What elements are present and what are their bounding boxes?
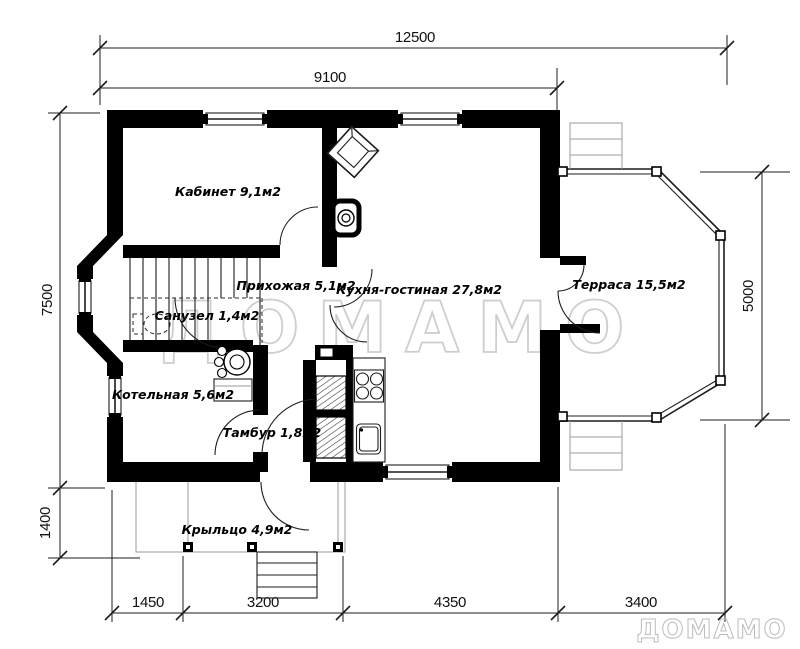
dim-house-width: 9100 <box>314 69 346 86</box>
brand-logo-text: ДОМАМО <box>636 615 787 645</box>
brand-logo: ДОМАМО <box>636 615 787 645</box>
kitchen-counter <box>353 358 385 462</box>
window-top-kitchen <box>398 110 462 128</box>
label-boiler-room: Котельная 5,6м2 <box>112 387 234 402</box>
floor-plan-canvas: ДОМАМО <box>0 0 800 649</box>
window-bay-stairs <box>77 277 93 317</box>
label-kitchen-living: Кухня-гостиная 27,8м2 <box>336 282 502 297</box>
window-bottom-kitchen <box>383 462 452 482</box>
dim-house-depth: 7500 <box>39 284 56 316</box>
dim-bottom-3: 4350 <box>434 594 466 611</box>
label-office: Кабинет 9,1м2 <box>175 184 281 199</box>
label-vestibule: Тамбур 1,8м2 <box>223 425 321 440</box>
terrace-steps-bottom <box>570 421 622 470</box>
label-terrace: Терраса 15,5м2 <box>572 277 685 292</box>
office-door-arc <box>280 207 318 245</box>
porch-posts <box>183 542 343 552</box>
stove-icon <box>333 201 359 235</box>
label-wc: Санузел 1,4м2 <box>155 308 260 323</box>
dim-total-width: 12500 <box>395 29 435 46</box>
porch <box>136 482 345 598</box>
dim-bottom-4: 3400 <box>625 594 657 611</box>
dim-terrace-depth: 5000 <box>740 280 757 312</box>
porch-steps <box>257 552 317 598</box>
dim-bottom-1: 1450 <box>132 594 164 611</box>
window-top-office <box>203 110 267 128</box>
label-porch: Крыльцо 4,9м2 <box>182 522 293 537</box>
dim-bottom-2: 3200 <box>247 594 279 611</box>
terrace-steps-top <box>570 123 622 169</box>
dim-porch-depth: 1400 <box>37 507 54 539</box>
wardrobes <box>316 376 346 458</box>
